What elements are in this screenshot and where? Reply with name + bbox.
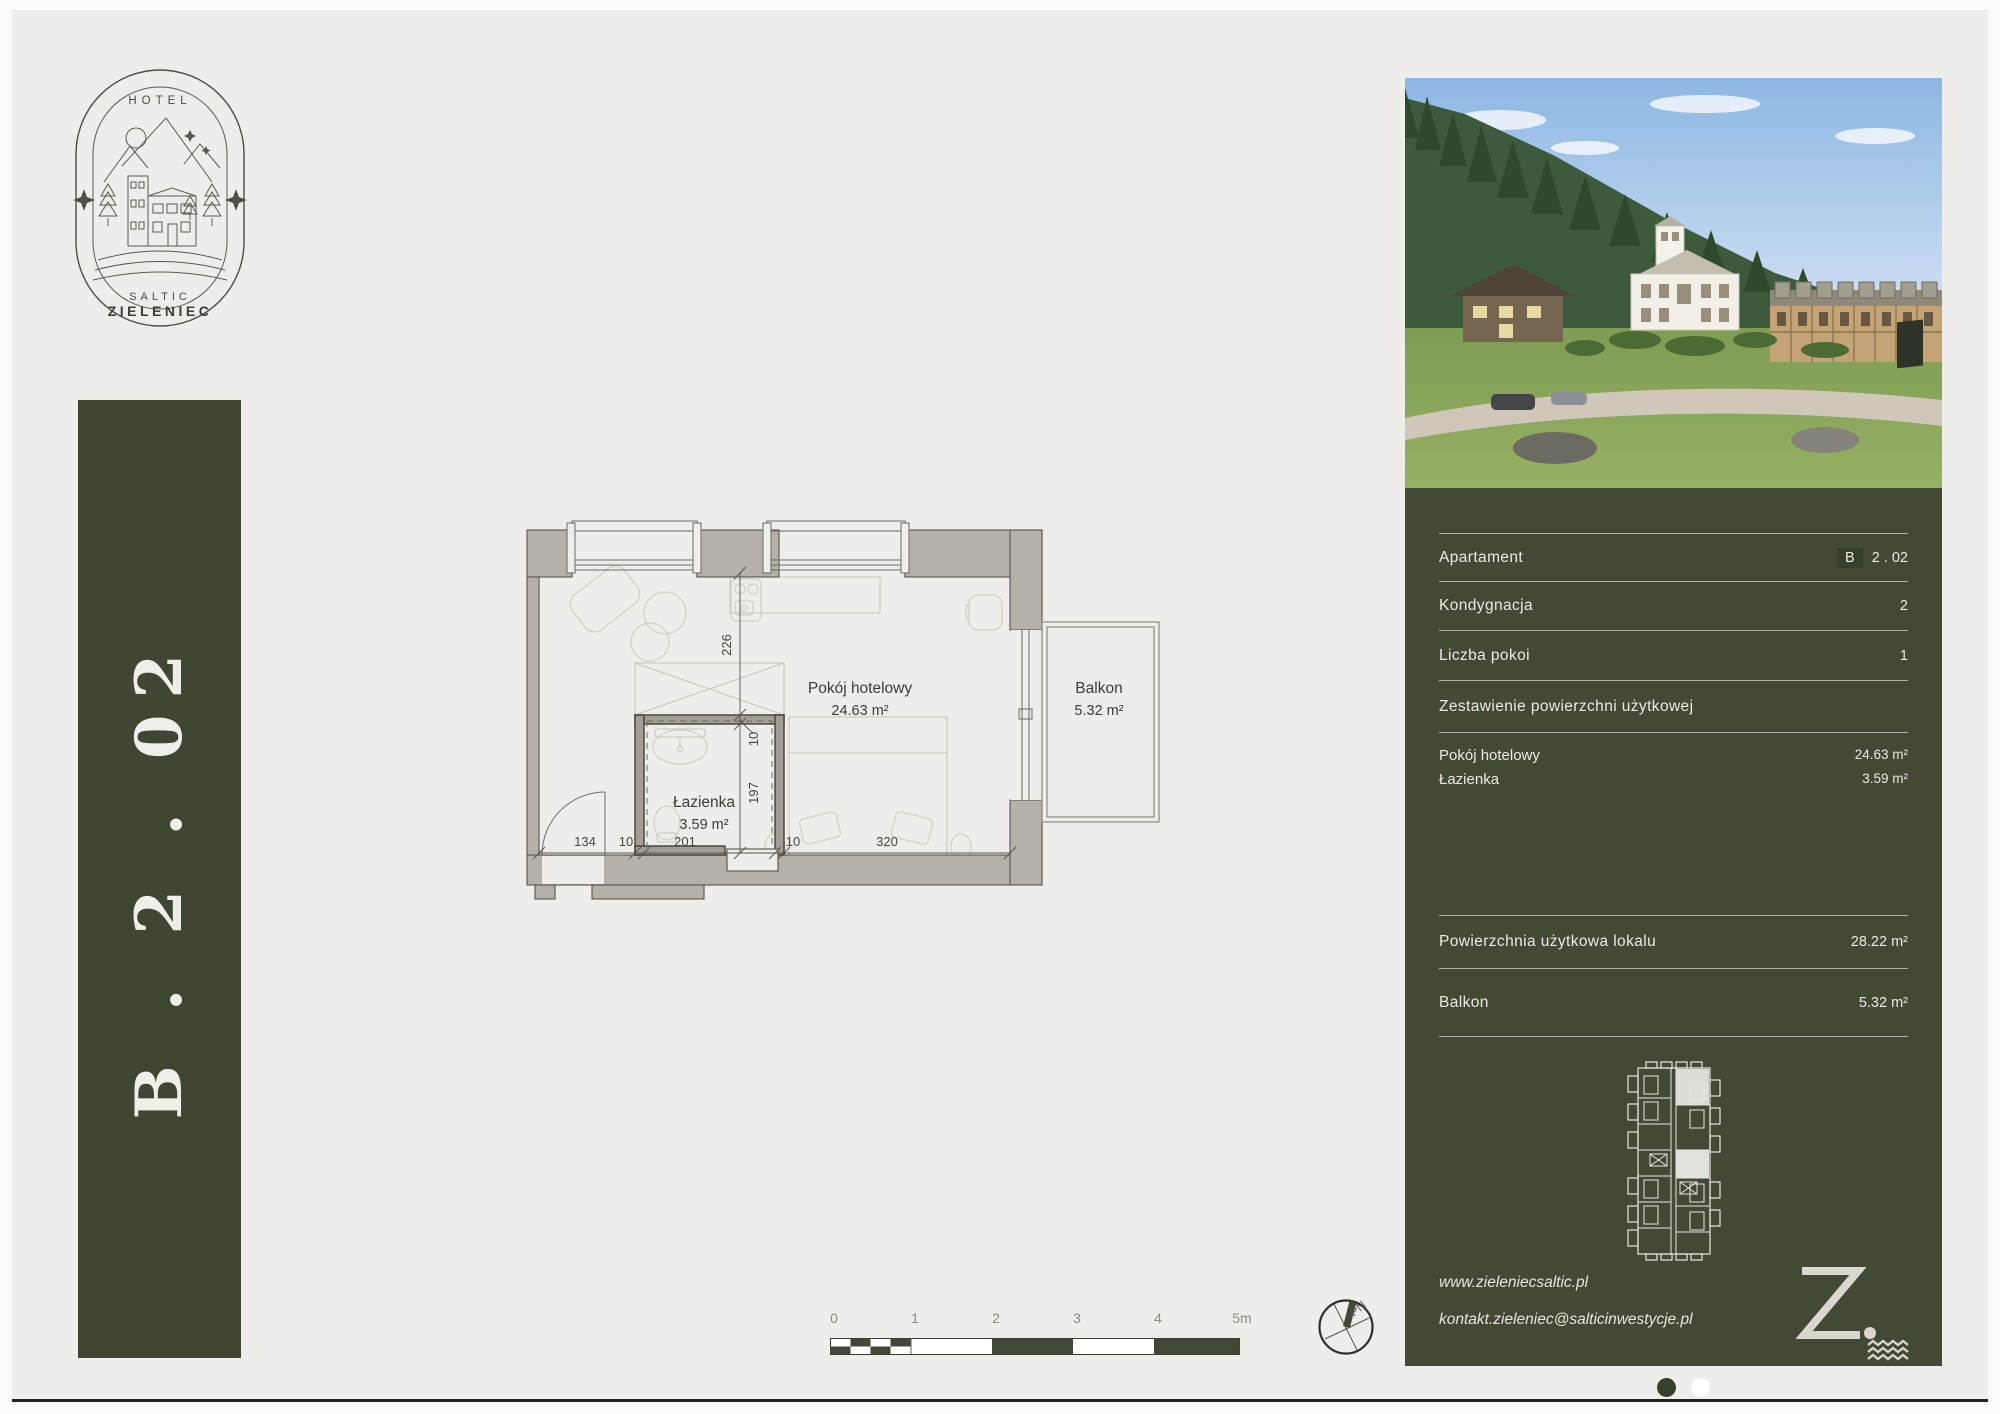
page-background: HOTEL — [12, 10, 1988, 1402]
row-kondygnacja-label: Kondygnacja — [1439, 597, 1533, 615]
row-apartament: Apartament B 2 . 02 — [1439, 533, 1908, 581]
building-letter-badge: B — [1837, 548, 1863, 568]
dim-bath-depth: 197 — [746, 782, 761, 804]
hotel-photo — [1405, 78, 1942, 488]
hotel-logo: HOTEL — [72, 66, 248, 330]
logo-saltic-text: SALTIC — [129, 291, 191, 303]
row-liczba-pokoi: Liczba pokoi 1 — [1439, 630, 1908, 680]
z-brand-logo — [1796, 1263, 1912, 1363]
area-value: 3.59 m² — [1862, 771, 1908, 788]
waves-icon — [1868, 1341, 1908, 1359]
building-key-plan — [1405, 1058, 1942, 1264]
scale-bar-labels: 0 1 2 3 4 5m — [830, 1310, 1250, 1330]
row-liczba-pokoi-value: 1 — [1900, 648, 1908, 664]
row-total-area: Powierzchnia użytkowa lokalu 28.22 m² — [1439, 915, 1908, 968]
row-apartament-value: 2 . 02 — [1872, 550, 1908, 566]
z-letter-icon — [1802, 1271, 1860, 1335]
balcony-outline — [1042, 622, 1159, 822]
dim-wall-right: 10 — [786, 834, 800, 849]
apartment-data-table: Apartament B 2 . 02 Kondygnacja 2 Liczba… — [1439, 533, 1908, 1037]
row-kondygnacja: Kondygnacja 2 — [1439, 581, 1908, 630]
balcony-door-icon — [1011, 630, 1041, 800]
dim-wall-top: 10 — [746, 732, 761, 746]
scale-label-2: 2 — [992, 1310, 1000, 1326]
scale-bar-graphic — [830, 1338, 1244, 1356]
area-row-bathroom: Łazienka 3.59 m² — [1439, 771, 1908, 788]
compass-north-icon: PN — [1317, 1298, 1375, 1356]
logo-zieleniec-text: ZIELENIEC — [108, 303, 213, 319]
scale-label-1: 1 — [911, 1310, 919, 1326]
apartment-code-text: B . 2 . 02 — [122, 638, 197, 1119]
scale-label-3: 3 — [1073, 1310, 1081, 1326]
floor-plan: 226 10 197 134 10 201 10 320 Pokój hotel… — [517, 515, 1172, 907]
room-area-balcony: 5.32 m² — [1074, 703, 1123, 719]
hotel-logo-icon: HOTEL — [72, 66, 248, 330]
row-apartament-label: Apartament — [1439, 549, 1523, 567]
panel-footer: www.zieleniecsaltic.pl kontakt.zieleniec… — [1439, 1274, 1693, 1348]
row-zestawienie-label: Zestawienie powierzchni użytkowej — [1439, 698, 1693, 716]
hotel-building-icon — [128, 176, 196, 246]
ground-arcs-icon — [93, 251, 227, 280]
row-total-area-value: 28.22 m² — [1851, 934, 1908, 950]
bottom-edge-line — [12, 1399, 1988, 1402]
row-zestawienie: Zestawienie powierzchni użytkowej — [1439, 680, 1908, 732]
dim-bath-width: 201 — [674, 834, 696, 849]
room-label-balcony: Balkon — [1075, 680, 1122, 697]
pine-trees-icon — [99, 184, 221, 226]
logo-hotel-text: HOTEL — [128, 95, 191, 107]
scale-label-4: 4 — [1154, 1310, 1162, 1326]
area-label: Łazienka — [1439, 771, 1499, 788]
area-value: 24.63 m² — [1855, 747, 1908, 764]
page-dot-1-active[interactable] — [1657, 1378, 1676, 1397]
dim-bed-zone: 320 — [876, 834, 898, 849]
row-liczba-pokoi-label: Liczba pokoi — [1439, 647, 1530, 665]
floor-plan-drawing: 226 10 197 134 10 201 10 320 Pokój hotel… — [517, 515, 1172, 907]
room-area-bathroom: 3.59 m² — [679, 817, 728, 833]
area-label: Pokój hotelowy — [1439, 747, 1540, 764]
apartment-code-banner: B . 2 . 02 — [78, 400, 241, 1358]
email-link[interactable]: kontakt.zieleniec@salticinwestycje.pl — [1439, 1311, 1693, 1329]
row-balcony-area: Balkon 5.32 m² — [1439, 968, 1908, 1036]
room-label-bathroom: Łazienka — [673, 794, 735, 811]
room-area-hotel-room: 24.63 m² — [831, 703, 888, 719]
bathroom-walls — [635, 715, 784, 871]
scale-bar: 0 1 2 3 4 5m — [830, 1310, 1250, 1366]
website-link[interactable]: www.zieleniecsaltic.pl — [1439, 1274, 1693, 1292]
pagination-dots — [1657, 1378, 1710, 1397]
row-kondygnacja-value: 2 — [1900, 598, 1908, 614]
scale-label-5m: 5m — [1232, 1310, 1251, 1326]
scale-label-0: 0 — [830, 1310, 838, 1326]
row-balcony-area-value: 5.32 m² — [1859, 995, 1908, 1011]
page-dot-2[interactable] — [1691, 1378, 1710, 1397]
sun-icon — [126, 128, 146, 148]
dim-wall-left: 10 — [619, 834, 633, 849]
dim-room-depth: 226 — [719, 634, 734, 656]
info-panel: Apartament B 2 . 02 Kondygnacja 2 Liczba… — [1405, 78, 1942, 1366]
z-dot-icon — [1864, 1327, 1876, 1339]
area-breakdown: Pokój hotelowy 24.63 m² Łazienka 3.59 m² — [1439, 732, 1908, 915]
table-end-divider — [1439, 1036, 1908, 1037]
room-label-hotel-room: Pokój hotelowy — [808, 680, 913, 697]
area-row-hotel-room: Pokój hotelowy 24.63 m² — [1439, 747, 1908, 764]
row-total-area-label: Powierzchnia użytkowa lokalu — [1439, 933, 1656, 951]
dim-entry: 134 — [574, 834, 596, 849]
row-balcony-area-label: Balkon — [1439, 994, 1489, 1012]
